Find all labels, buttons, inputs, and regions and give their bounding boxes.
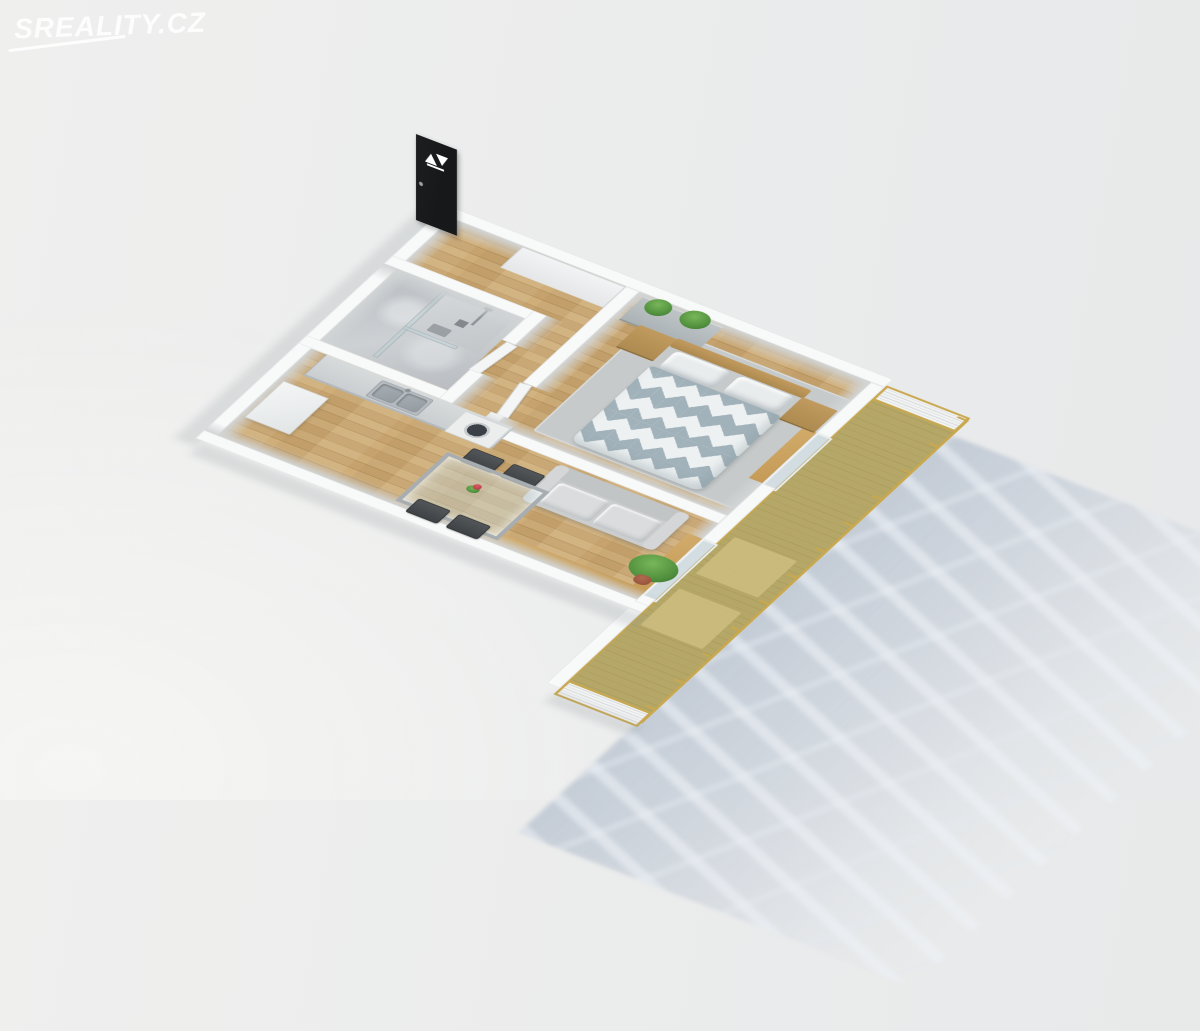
door-logo-triangle xyxy=(436,154,448,169)
entrance-door xyxy=(416,134,457,236)
door-handle xyxy=(419,181,423,187)
door-logo-emblem xyxy=(425,149,447,171)
floor-plan-3d-render xyxy=(0,185,1200,1031)
